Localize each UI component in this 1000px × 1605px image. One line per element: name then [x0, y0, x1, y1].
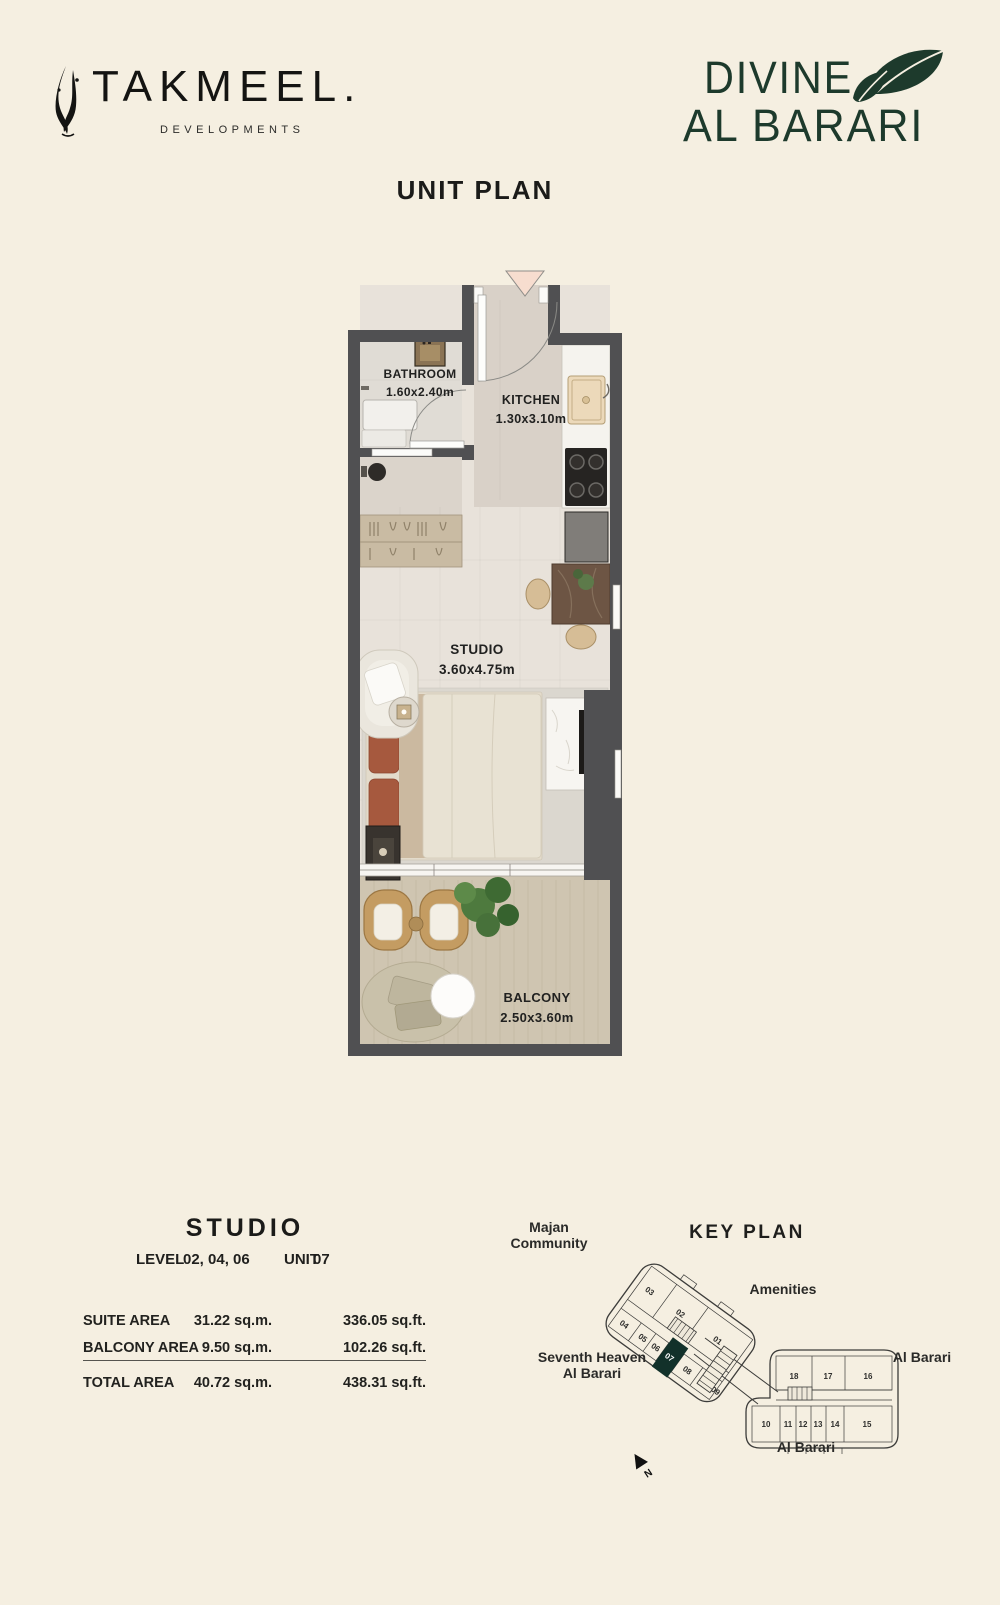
studio-dims: 3.60x4.75m	[439, 662, 515, 677]
total-area-sqm: 40.72 sq.m.	[150, 1375, 272, 1395]
unit-10: 10	[762, 1420, 771, 1429]
unit-06: 06	[649, 1341, 662, 1354]
divine-logo-line2: AL BARARI	[683, 100, 924, 152]
kitchen-dims: 1.30x3.10m	[496, 412, 567, 426]
suite-area-sqft: 336.05 sq.ft.	[288, 1313, 426, 1333]
unit-08: 08	[681, 1364, 694, 1377]
divine-logo-line1: DIVINE	[704, 52, 853, 104]
unit-type-title: STUDIO	[130, 1214, 360, 1243]
total-area-sqft: 438.31 sq.ft.	[288, 1375, 426, 1395]
key-plan: KEY PLAN 03 02 01 04 05 06 07 08 09	[498, 1192, 968, 1492]
kitchen-label: KITCHEN	[502, 393, 560, 407]
unit-05: 05	[636, 1332, 649, 1345]
takmeel-logo-text: TAKMEEL.	[92, 62, 362, 112]
balcony-dims: 2.50x3.60m	[500, 1010, 573, 1025]
unit-04: 04	[618, 1318, 631, 1331]
key-plan-left-wing: 03 02 01 04 05 06 07 08 09	[599, 1253, 764, 1409]
seventh-heaven-label-line1: Seventh Heaven	[538, 1349, 646, 1365]
key-plan-labels: Majan Community Amenities Seventh Heaven…	[511, 1219, 952, 1455]
seventh-heaven-label-line2: Al Barari	[563, 1365, 621, 1381]
floor-plan: BATHROOM 1.60x2.40m KITCHEN 1.30x3.10m S…	[336, 260, 634, 1062]
unit-15: 15	[863, 1420, 872, 1429]
unit-18: 18	[790, 1372, 799, 1381]
north-label: N	[643, 1467, 655, 1480]
side-table	[389, 697, 419, 727]
balcony-area-sqm: 9.50 sq.m.	[150, 1340, 272, 1360]
bathroom-dims: 1.60x2.40m	[386, 385, 454, 399]
sliding-door	[358, 864, 586, 876]
balcony-label: BALCONY	[503, 990, 570, 1005]
wardrobe	[360, 515, 462, 567]
unit-16: 16	[864, 1372, 873, 1381]
level-label: LEVEL	[136, 1251, 184, 1268]
al-barari-right-label: Al Barari	[893, 1349, 951, 1365]
bathroom-label: BATHROOM	[384, 367, 457, 381]
level-value: 02, 04, 06	[183, 1251, 250, 1268]
suite-area-sqm: 31.22 sq.m.	[150, 1313, 272, 1333]
leaf-icon	[851, 44, 947, 106]
north-arrow-icon: N	[629, 1450, 657, 1483]
unit-12: 12	[799, 1420, 808, 1429]
unit-13: 13	[814, 1420, 823, 1429]
table-divider	[83, 1360, 426, 1361]
unit-17: 17	[824, 1372, 833, 1381]
unit-01: 01	[711, 1334, 724, 1347]
takmeel-tagline: DEVELOPMENTS	[160, 124, 304, 136]
amenities-label: Amenities	[750, 1281, 817, 1297]
key-plan-title: KEY PLAN	[689, 1222, 805, 1243]
unit-14: 14	[831, 1420, 840, 1429]
studio-label: STUDIO	[450, 642, 503, 657]
majan-label-line2: Community	[511, 1235, 588, 1251]
majan-label-line1: Majan	[529, 1219, 569, 1235]
wall-niche	[546, 698, 586, 790]
balcony-area-sqft: 102.26 sq.ft.	[288, 1340, 426, 1360]
unit-11: 11	[784, 1420, 793, 1429]
takmeel-calligraphy-icon	[46, 60, 90, 140]
key-plan-corridor	[694, 1338, 778, 1404]
page-title: UNIT PLAN	[365, 175, 585, 206]
kitchen-fixtures	[562, 345, 610, 562]
unit-value: 07	[313, 1251, 330, 1268]
unit-03: 03	[643, 1285, 656, 1298]
al-barari-bottom-label: Al Barari	[777, 1439, 835, 1455]
